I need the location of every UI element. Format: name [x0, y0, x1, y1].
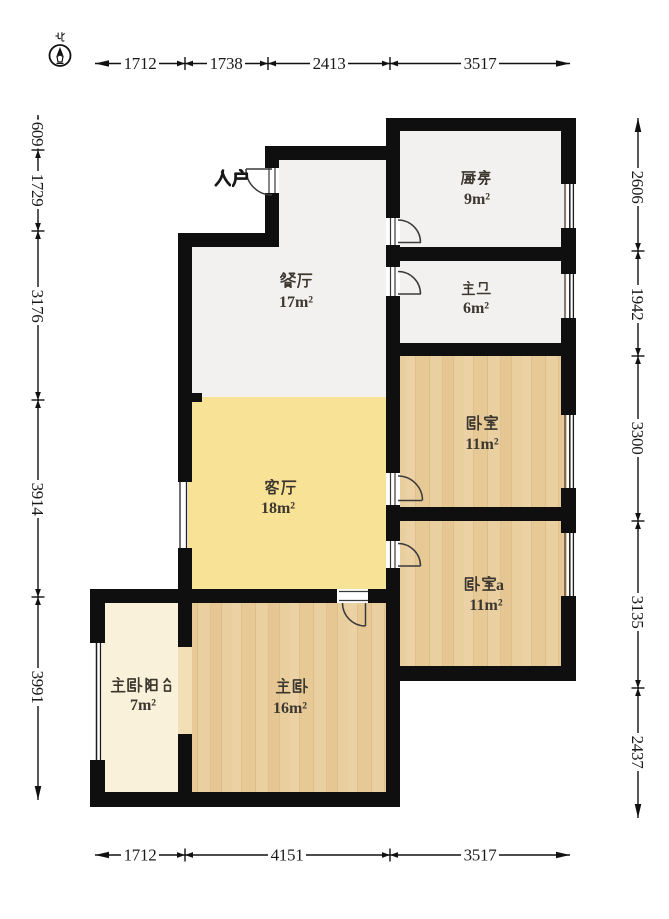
- svg-text:17m²: 17m²: [279, 294, 313, 311]
- svg-text:1729: 1729: [28, 174, 47, 207]
- svg-text:1712: 1712: [124, 54, 157, 73]
- svg-text:9m²: 9m²: [464, 191, 490, 208]
- svg-text:3991: 3991: [28, 671, 47, 704]
- svg-text:3517: 3517: [464, 846, 498, 865]
- svg-text:18m²: 18m²: [261, 500, 295, 517]
- svg-text:3914: 3914: [28, 483, 47, 517]
- svg-text:7m²: 7m²: [130, 697, 156, 714]
- svg-text:1738: 1738: [210, 54, 243, 73]
- svg-text:2606: 2606: [628, 171, 647, 204]
- svg-text:6m²: 6m²: [463, 300, 489, 317]
- svg-text:3135: 3135: [628, 596, 647, 629]
- svg-text:3300: 3300: [628, 422, 647, 455]
- svg-text:a: a: [496, 577, 504, 594]
- svg-text:16m²: 16m²: [273, 700, 307, 717]
- svg-text:2437: 2437: [628, 736, 647, 770]
- svg-text:3517: 3517: [464, 54, 498, 73]
- svg-text:3176: 3176: [28, 290, 47, 323]
- svg-text:1712: 1712: [124, 846, 157, 865]
- svg-text:11m²: 11m²: [469, 597, 502, 614]
- svg-text:11m²: 11m²: [465, 436, 498, 453]
- svg-text:2413: 2413: [313, 54, 346, 73]
- svg-text:1942: 1942: [628, 288, 647, 321]
- svg-text:609: 609: [28, 122, 47, 147]
- svg-text:4151: 4151: [271, 846, 304, 865]
